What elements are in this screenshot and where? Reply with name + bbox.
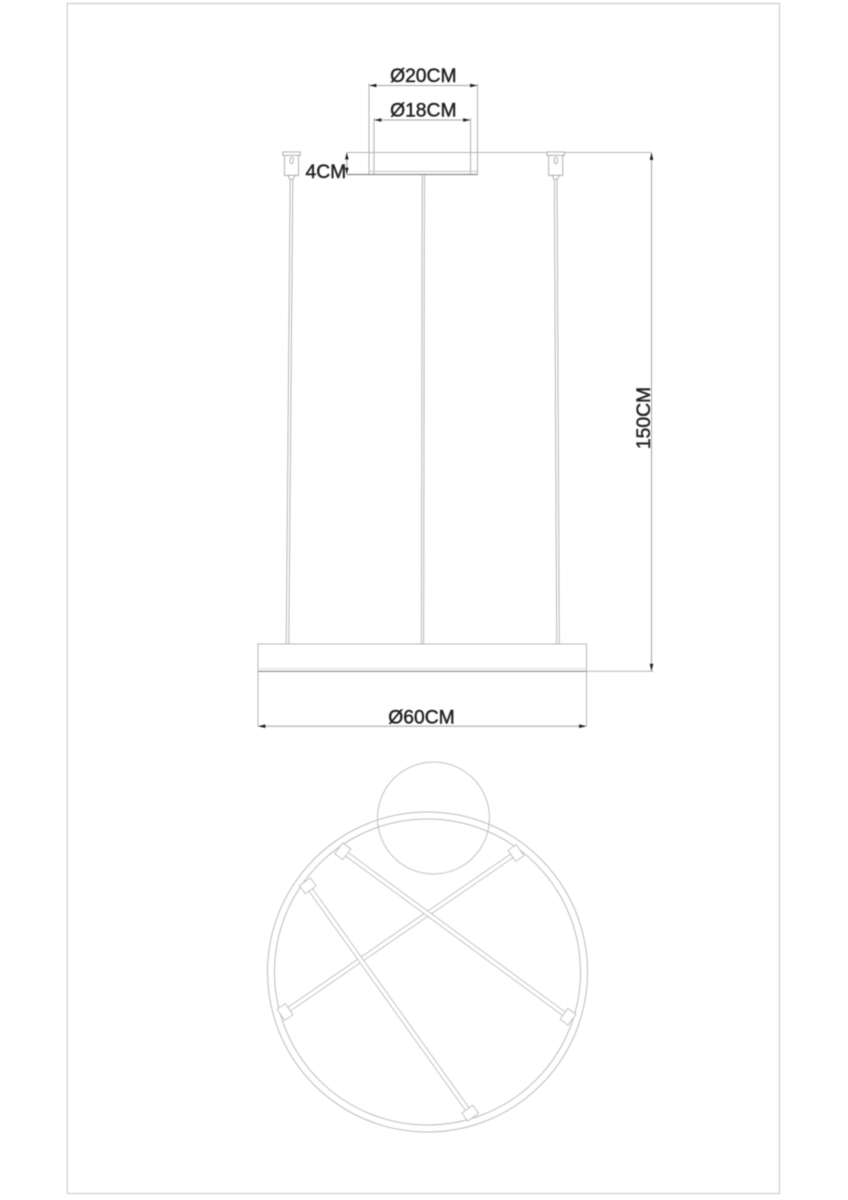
svg-text:Ø18CM: Ø18CM xyxy=(390,100,456,121)
svg-text:4CM: 4CM xyxy=(305,162,346,183)
svg-text:150CM: 150CM xyxy=(634,387,655,449)
svg-text:Ø60CM: Ø60CM xyxy=(388,707,454,728)
svg-text:Ø20CM: Ø20CM xyxy=(390,66,456,87)
